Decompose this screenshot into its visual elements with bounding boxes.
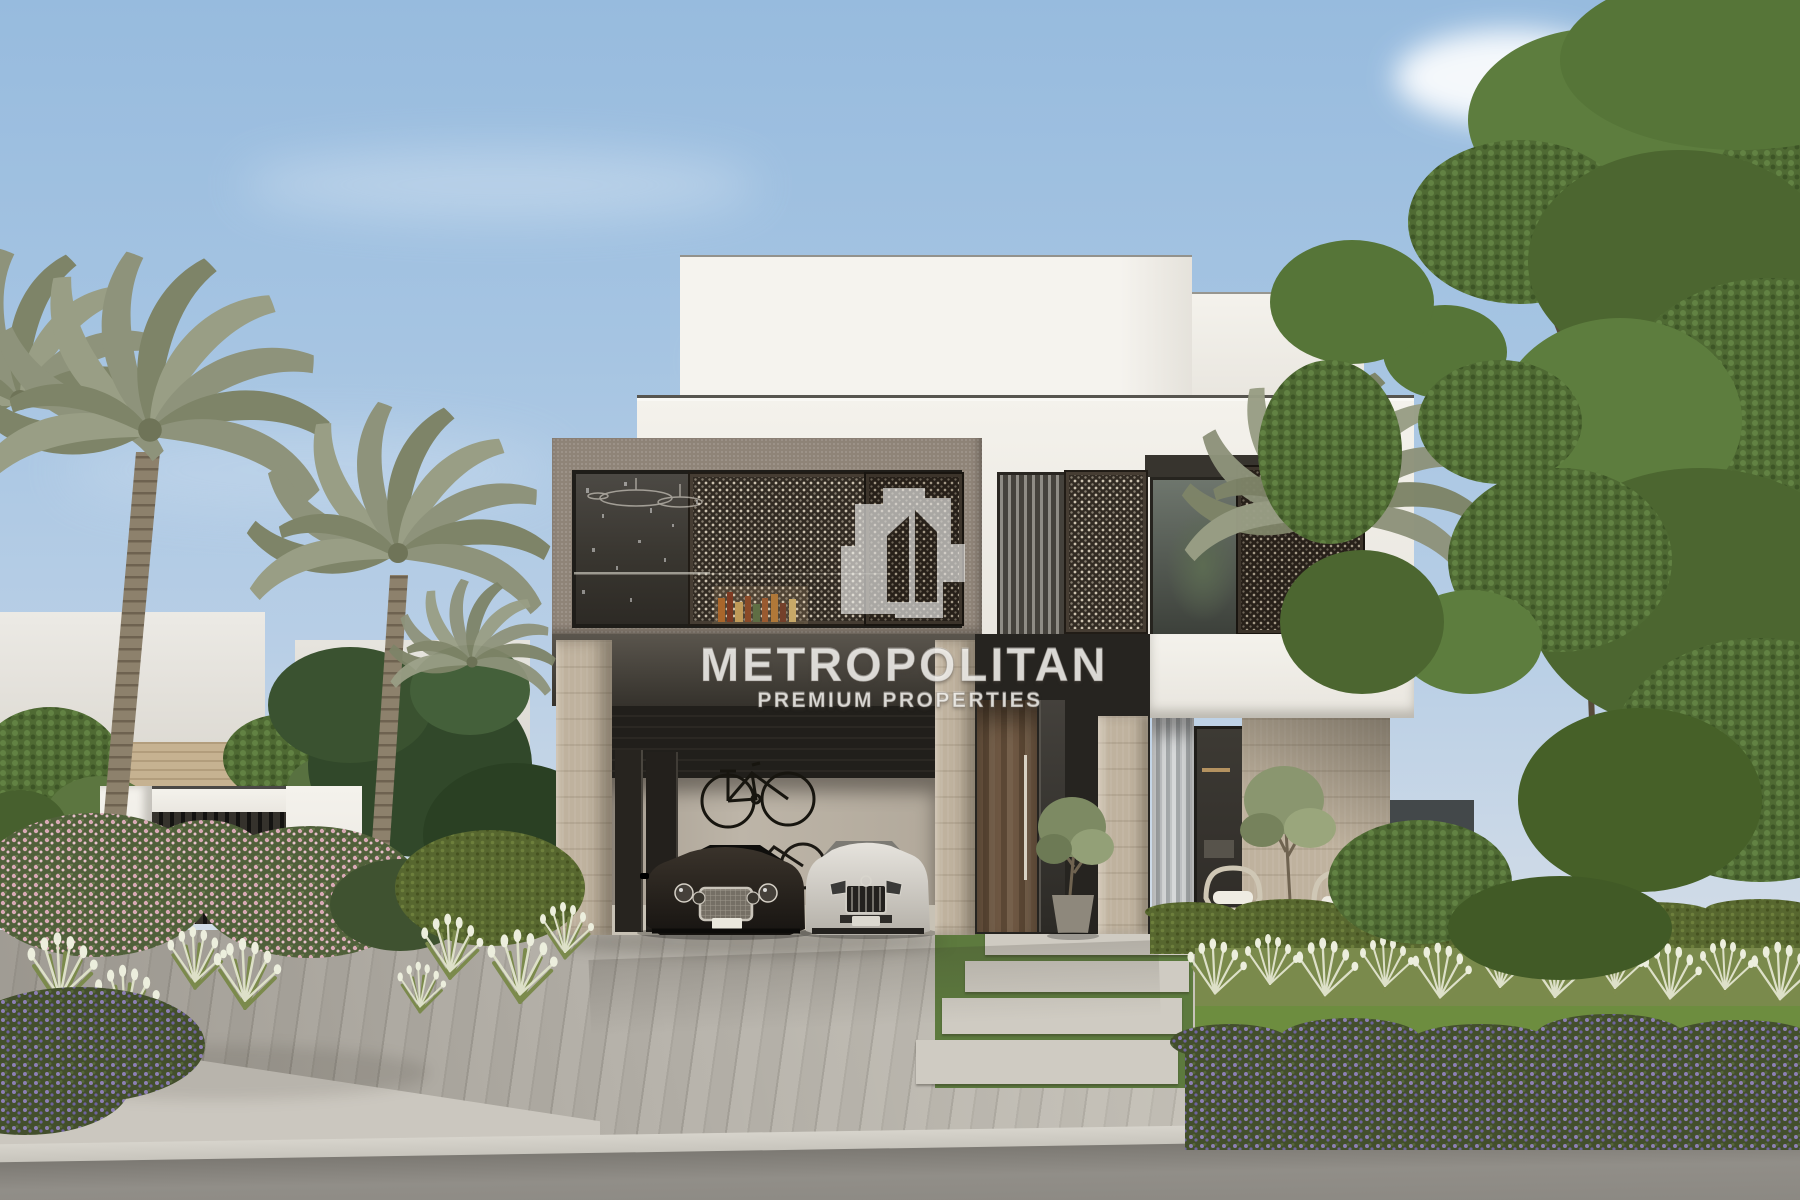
- watermark-tagline: PREMIUM PROPERTIES: [700, 690, 1100, 712]
- large-green-tree: [1258, 0, 1800, 980]
- villa-exterior-render: METROPOLITAN PREMIUM PROPERTIES: [0, 0, 1800, 1200]
- metropolitan-logo: [831, 482, 971, 622]
- watermark-brand: METROPOLITAN: [700, 641, 1100, 689]
